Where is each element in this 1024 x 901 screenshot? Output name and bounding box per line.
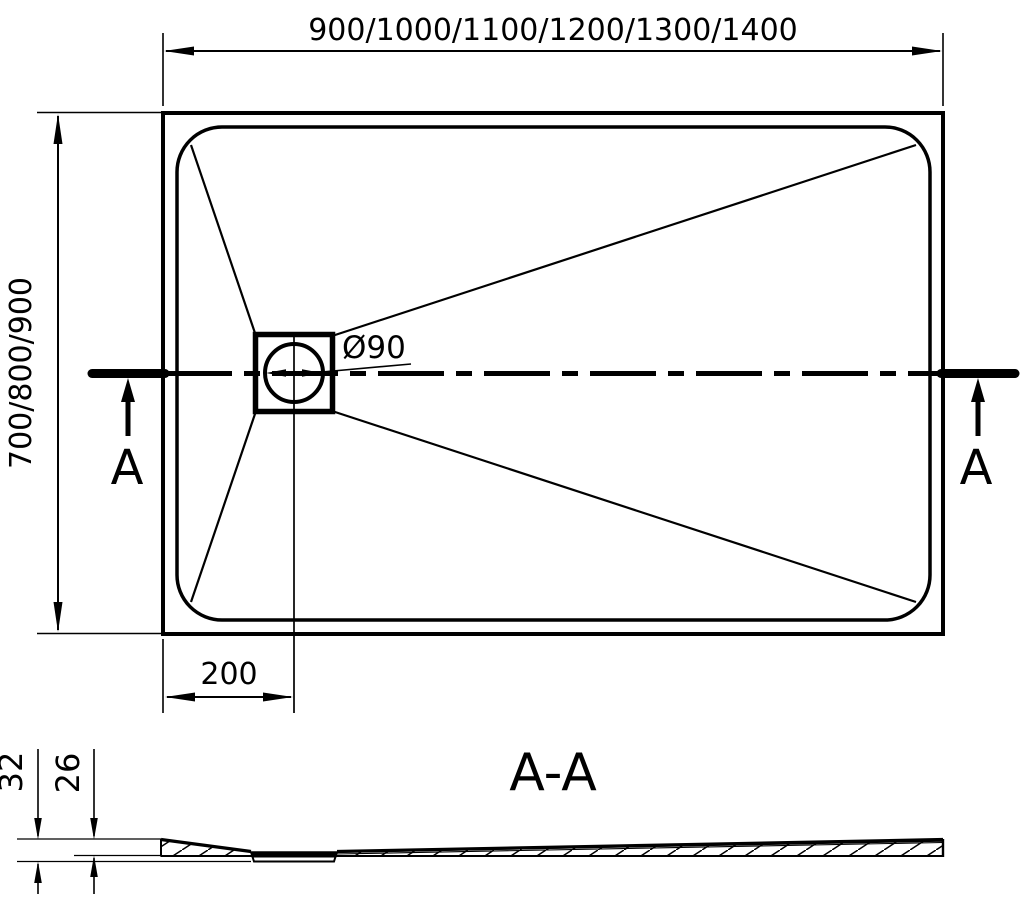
drain-diameter-label: Ø90 [342,330,406,366]
arrowhead-right [912,47,942,56]
slope-line-bottom-left [191,411,256,602]
arrowhead-top [54,114,63,144]
dim-26-arrow-up [90,856,98,878]
view-arrow-right [971,378,985,402]
width-dimension: 900/1000/1100/1200/1300/1400 [163,13,943,106]
dim-26-arrow-down [90,818,98,840]
dim-32-arrow-down [34,818,42,840]
drain-offset-label: 200 [200,657,257,692]
base-height-label: 26 [49,753,87,794]
section-title: A-A [509,743,597,803]
section-profile [161,839,943,862]
drain: Ø90 [256,330,412,713]
arrowhead-right [263,693,293,702]
slope-line-top-right [332,145,916,336]
slope-line-top-left [191,145,256,336]
dim-32-arrow-up [34,862,42,884]
arrowhead-left [165,693,195,702]
depth-dimension-label: 700/800/900 [4,277,39,469]
section-marker-right-label: A [960,440,993,496]
height-dimensions: 32 26 [0,749,251,894]
drain-offset-dimension: 200 [163,639,293,713]
view-arrow-left [121,378,135,402]
drain-seat-section [252,852,337,858]
section-view: A-A 32 26 [0,743,943,894]
width-dimension-label: 900/1000/1100/1200/1300/1400 [308,13,798,48]
section-cut-line: A A [92,374,1015,497]
arrowhead-bottom [54,602,63,632]
shower-tray-technical-drawing: 900/1000/1100/1200/1300/1400 700/800/900 [0,0,1024,901]
section-marker-left-label: A [111,440,144,496]
drawing-canvas: 900/1000/1100/1200/1300/1400 700/800/900 [0,0,1024,901]
arrowhead-left [164,47,194,56]
top-view: 900/1000/1100/1200/1300/1400 700/800/900 [4,13,1015,713]
slope-line-bottom-right [332,411,916,602]
overall-height-label: 32 [0,752,30,793]
